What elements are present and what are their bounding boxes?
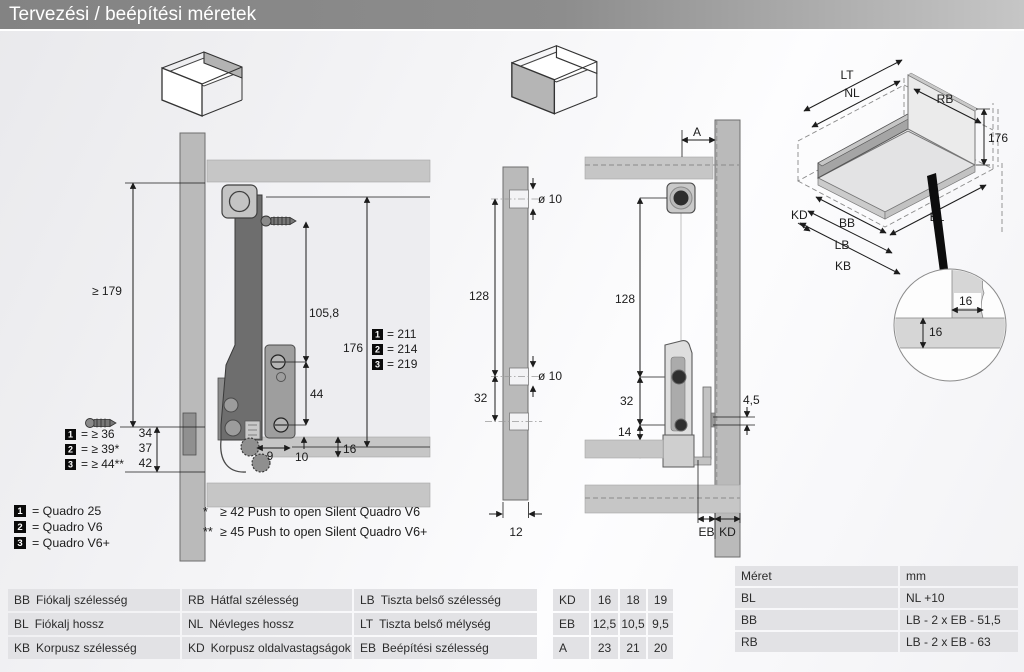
value: 23 — [598, 641, 611, 655]
value: 12,5 — [593, 617, 616, 631]
value: 18 — [626, 593, 639, 607]
label-kd: KD — [791, 208, 808, 222]
cabinet-bottom-panel — [585, 485, 740, 513]
size-formula-table: Méret mm BL NL +10 BB LB - 2 x EB - 51,5… — [735, 566, 1018, 652]
size-formula: LB - 2 x EB - 51,5 — [906, 613, 1001, 627]
label-kb: KB — [835, 259, 851, 273]
legend-value: = ≥ 39* — [81, 442, 120, 456]
footnote-text: ≥ 42 Push to open Silent Quadro V6 — [220, 505, 420, 519]
table-cell: BBFiókalj szélesség — [8, 589, 180, 611]
abbr-code: EB — [360, 641, 376, 655]
label-eb: EB — [698, 525, 714, 539]
dim-12: 12 — [509, 525, 523, 539]
mount-screw — [674, 191, 689, 206]
table-cell: RB — [735, 632, 898, 652]
dim-hole-gap: 44 — [310, 387, 324, 401]
table-cell: BLFiókalj hossz — [8, 613, 180, 635]
abbr-code: RB — [188, 593, 205, 607]
variant-legend: 1 = Quadro 25 2 = Quadro V6 3 = Quadro V… — [14, 503, 110, 551]
dim-42: 42 — [139, 456, 153, 470]
table-cell: KBKorpusz szélesség — [8, 637, 180, 659]
row-label: A — [559, 641, 567, 655]
legend-num: 1 — [68, 430, 73, 440]
table-cell: LB - 2 x EB - 63 — [900, 632, 1018, 652]
header-label: Méret — [741, 569, 772, 583]
value: 19 — [654, 593, 667, 607]
table-cell: 21 — [620, 637, 646, 659]
drawer-bottom-panel — [585, 440, 663, 458]
footnote-marker: ** — [203, 525, 220, 539]
legend-row: 1 = Quadro 25 — [14, 503, 110, 519]
table-cell: KDKorpusz oldalvastagságok — [182, 637, 352, 659]
cabinet-top-panel — [585, 157, 713, 179]
variant-label: = Quadro 25 — [32, 504, 101, 518]
table-cell: RBHátfal szélesség — [182, 589, 352, 611]
table-cell: 10,5 — [620, 613, 646, 635]
legend-num: 3 — [68, 460, 73, 470]
table-cell: 19 — [648, 589, 673, 611]
profile-hole — [225, 420, 241, 436]
abbr-label: Korpusz szélesség — [36, 641, 137, 655]
row-label: EB — [559, 617, 575, 631]
dim-32: 32 — [620, 394, 634, 408]
hook-rail — [703, 387, 711, 459]
table-cell: 9,5 — [648, 613, 673, 635]
value: 10,5 — [621, 617, 644, 631]
abbr-label: Fiókalj szélesség — [36, 593, 127, 607]
detail-dim-16t: 16 — [929, 325, 943, 339]
abbr-code: BB — [14, 593, 30, 607]
table-cell: EB — [553, 613, 589, 635]
top-mount-plate — [222, 185, 257, 218]
size-formula: LB - 2 x EB - 63 — [906, 635, 991, 649]
legend-num: 2 — [375, 345, 380, 355]
dim-min-height: ≥ 179 — [92, 284, 122, 298]
abbr-label: Névleges hossz — [209, 617, 294, 631]
size-formula: NL +10 — [906, 591, 945, 605]
label-lt: LT — [840, 68, 854, 82]
legend-num: 1 — [375, 330, 380, 340]
footnote: * ≥ 42 Push to open Silent Quadro V6 — [203, 502, 427, 522]
dim-9: 9 — [267, 449, 274, 463]
dim-14: 14 — [618, 425, 632, 439]
abbr-code: KB — [14, 641, 30, 655]
dim-16: 16 — [343, 442, 357, 456]
profile-hole — [224, 398, 238, 412]
dim-10: 10 — [295, 450, 309, 464]
abbr-label: Beépítési szélesség — [382, 641, 489, 655]
table-cell: NLNévleges hossz — [182, 613, 352, 635]
figure-back-panel-drilling: ø 10 ø 10 128 32 12 — [445, 145, 575, 555]
abbr-code: NL — [188, 617, 203, 631]
abbr-label: Tiszta belső mélység — [379, 617, 491, 631]
legend-num: 2 — [68, 445, 73, 455]
size-code: BL — [741, 591, 756, 605]
dim-176: 176 — [988, 131, 1008, 145]
abbr-code: LT — [360, 617, 373, 631]
variant-num-badge: 3 — [14, 537, 26, 549]
table-cell: 23 — [591, 637, 618, 659]
variant-label: = Quadro V6+ — [32, 536, 110, 550]
heights-legend: 1 = 211 2 = 214 3 = 219 — [372, 327, 418, 371]
dim-45: 4,5 — [743, 393, 760, 407]
legend-value: = 211 — [387, 327, 417, 341]
table-cell: LBTiszta belső szélesség — [354, 589, 537, 611]
table-cell: 16 — [591, 589, 618, 611]
row-label: KD — [559, 593, 576, 607]
legend-value: = 219 — [387, 357, 418, 371]
variant-num-badge: 1 — [14, 505, 26, 517]
dim-a: A — [693, 125, 701, 139]
catalog-page: Tervezési / beépítési méretek — [0, 0, 1024, 672]
detail-dim-16w: 16 — [959, 294, 973, 308]
abbr-code: LB — [360, 593, 375, 607]
dim-back-height: 176 — [343, 341, 363, 355]
hook-foot — [694, 457, 711, 465]
dim-34: 34 — [139, 426, 153, 440]
extension-lines — [503, 502, 529, 518]
cabinet-top-panel — [207, 160, 430, 182]
page-title: Tervezési / beépítési méretek — [0, 0, 1024, 31]
variant-num-badge: 2 — [14, 521, 26, 533]
back-panel-section — [503, 167, 528, 500]
value: 20 — [654, 641, 667, 655]
table-cell: 12,5 — [591, 613, 618, 635]
table-header-cell: Méret — [735, 566, 898, 586]
mounting-screw — [261, 216, 296, 226]
table-cell: NL +10 — [900, 588, 1018, 608]
dim-hole-diameter-mid: ø 10 — [538, 369, 562, 383]
legend-value: = ≥ 36 — [81, 427, 115, 441]
legend-row: 2 = Quadro V6 — [14, 519, 110, 535]
dim-128: 128 — [469, 289, 489, 303]
abbr-code: BL — [14, 617, 29, 631]
kd-eb-a-table: KD 16 18 19 EB 12,5 10,5 9,5 A 23 21 20 — [553, 589, 673, 659]
table-cell: 18 — [620, 589, 646, 611]
bottom-panel-section — [890, 318, 1014, 348]
fixing-dowel — [183, 413, 196, 455]
profile-screw — [675, 419, 687, 431]
value: 21 — [626, 641, 639, 655]
abbr-label: Hátfal szélesség — [211, 593, 299, 607]
header-label: mm — [906, 569, 926, 583]
dim-32: 32 — [474, 391, 488, 405]
value: 9,5 — [652, 617, 669, 631]
label-nl: NL — [844, 86, 860, 100]
footnote-text: ≥ 45 Push to open Silent Quadro V6+ — [220, 525, 427, 539]
dim-hole-diameter-top: ø 10 — [538, 192, 562, 206]
size-code: BB — [741, 613, 757, 627]
figure-front-view: A 128 32 14 16 4,5 EB KD — [575, 105, 770, 560]
abbr-label: Fiókalj hossz — [35, 617, 104, 631]
label-lb: LB — [835, 238, 850, 252]
footnotes: * ≥ 42 Push to open Silent Quadro V6 ** … — [203, 502, 427, 542]
dim-128: 128 — [615, 292, 635, 306]
dim-screw-offset: 105,8 — [309, 306, 339, 320]
table-cell: A — [553, 637, 589, 659]
abbreviation-table: BBFiókalj szélesség RBHátfal szélesség L… — [8, 589, 537, 659]
label-kd: KD — [719, 525, 736, 539]
table-cell: EBBeépítési szélesség — [354, 637, 537, 659]
clearance-legend: 1 = ≥ 36 2 = ≥ 39* 3 = ≥ 44** — [65, 427, 124, 471]
footnote-marker: * — [203, 505, 220, 519]
footnote: ** ≥ 45 Push to open Silent Quadro V6+ — [203, 522, 427, 542]
cabinet-side-panel — [180, 133, 205, 561]
table-header-cell: mm — [900, 566, 1018, 586]
table-cell: BB — [735, 610, 898, 630]
label-rb: RB — [937, 92, 954, 106]
size-code: RB — [741, 635, 758, 649]
figure-side-section: ≥ 179 34 37 42 105,8 44 176 9 10 16 1 = … — [0, 33, 445, 568]
abbr-code: KD — [188, 641, 205, 655]
legend-value: = ≥ 44** — [81, 457, 124, 471]
profile-screw — [672, 370, 686, 384]
roller — [241, 438, 259, 456]
legend-num: 3 — [375, 360, 380, 370]
table-cell: LB - 2 x EB - 51,5 — [900, 610, 1018, 630]
dim-37: 37 — [139, 441, 153, 455]
legend-row: 3 = Quadro V6+ — [14, 535, 110, 551]
variant-label: = Quadro V6 — [32, 520, 103, 534]
abbr-label: Tiszta belső szélesség — [381, 593, 501, 607]
profile-foot — [663, 435, 694, 467]
table-cell: KD — [553, 589, 589, 611]
table-cell: 20 — [648, 637, 673, 659]
table-cell: LTTiszta belső mélység — [354, 613, 537, 635]
table-cell: BL — [735, 588, 898, 608]
figure-iso-view: LT NL RB 176 KD BB LB KB BL 16 16 — [790, 45, 1024, 395]
legend-value: = 214 — [387, 342, 418, 356]
value: 16 — [598, 593, 611, 607]
abbr-label: Korpusz oldalvastagságok — [211, 641, 351, 655]
